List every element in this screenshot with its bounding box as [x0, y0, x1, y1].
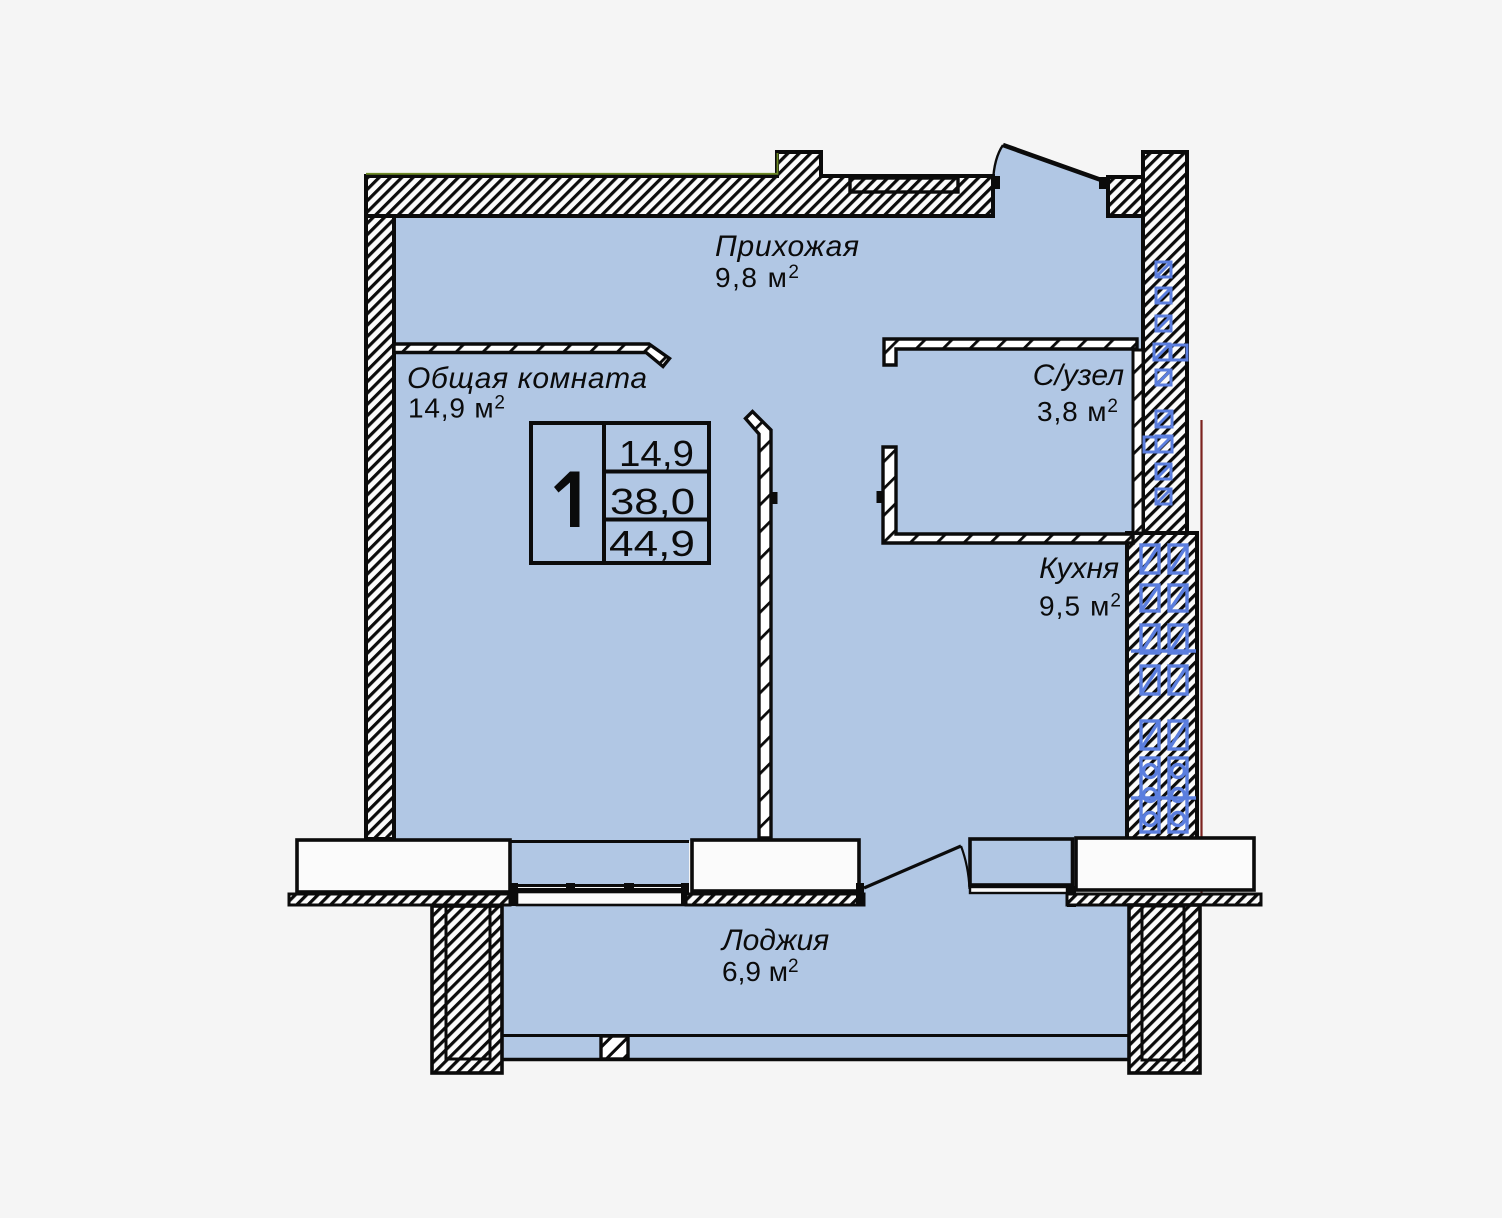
svg-text:Кухня: Кухня — [1039, 552, 1119, 585]
svg-text:Общая комната: Общая комната — [407, 362, 647, 395]
svg-text:Прихожая: Прихожая — [715, 230, 859, 263]
svg-text:9,5 м2: 9,5 м2 — [1039, 591, 1121, 622]
svg-text:38,0: 38,0 — [610, 481, 695, 522]
svg-text:6,9 м2: 6,9 м2 — [722, 956, 799, 987]
svg-text:44,9: 44,9 — [609, 523, 695, 564]
svg-text:14,9: 14,9 — [619, 433, 694, 474]
svg-text:3,8 м2: 3,8 м2 — [1037, 396, 1118, 427]
svg-text:С/узел: С/узел — [1033, 359, 1124, 392]
svg-text:14,9 м2: 14,9 м2 — [408, 393, 505, 424]
svg-text:Лоджия: Лоджия — [720, 924, 829, 957]
